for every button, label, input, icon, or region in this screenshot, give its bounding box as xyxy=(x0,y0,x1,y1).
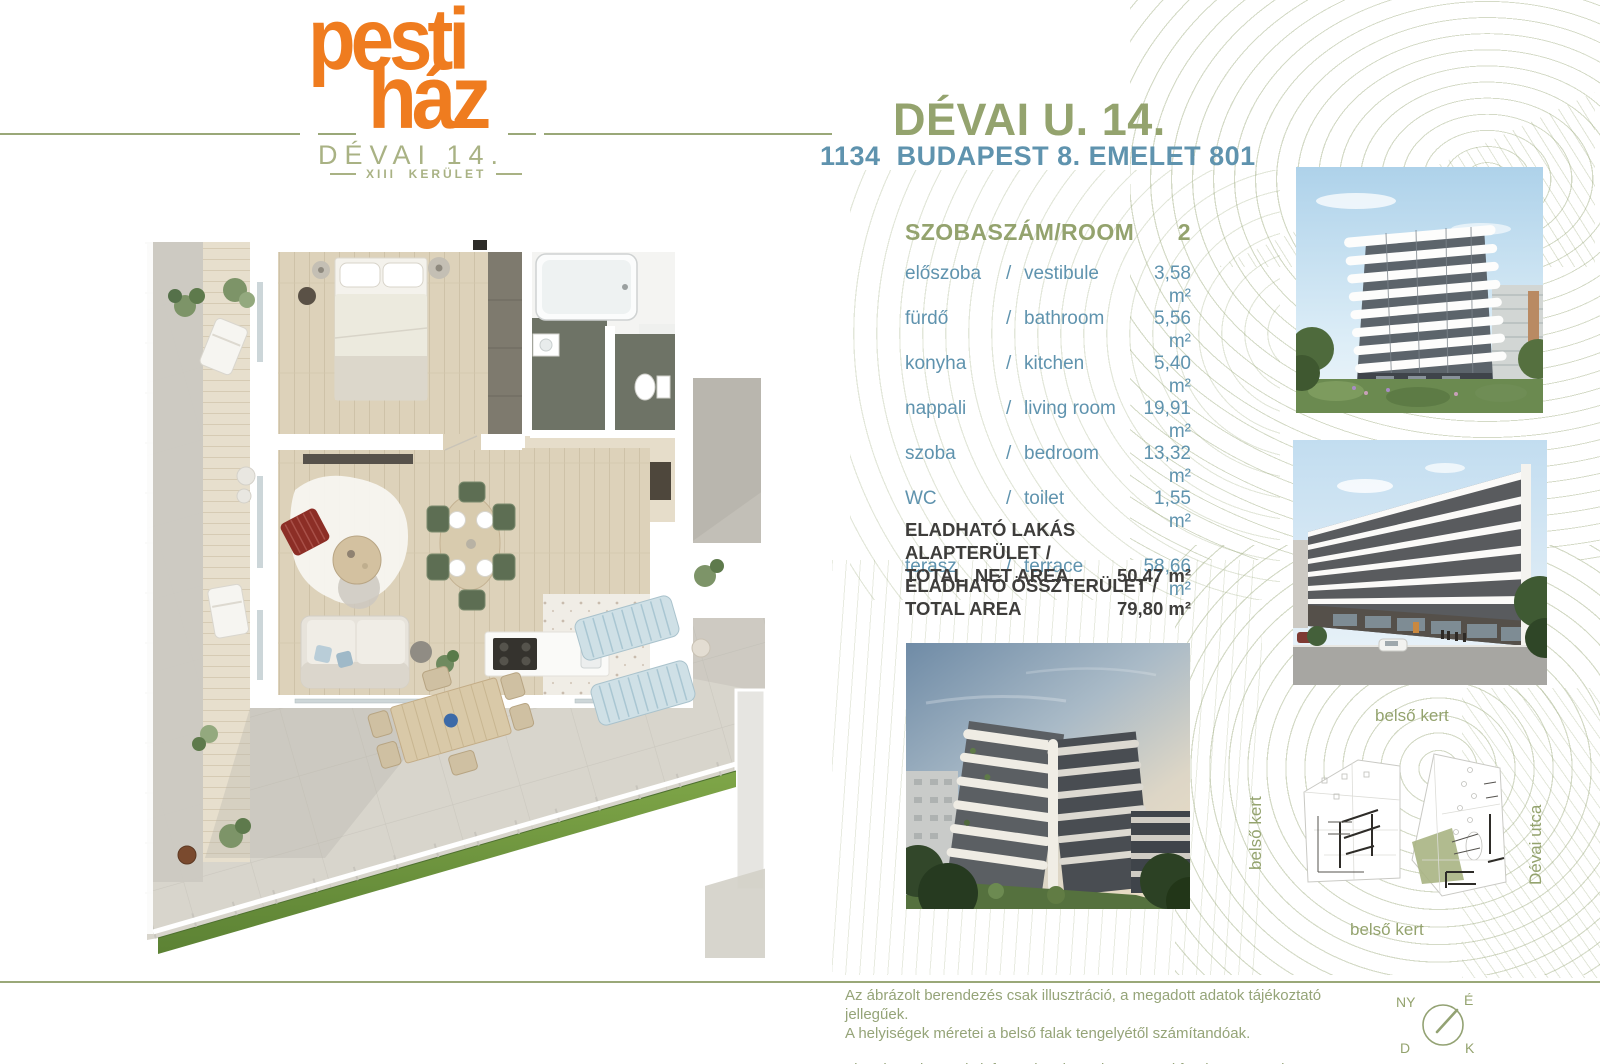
site-label-inner-garden-left: belső kert xyxy=(1246,780,1266,870)
room-name-hu: konyha xyxy=(905,353,1006,398)
header-rule xyxy=(544,133,832,135)
site-label-inner-garden-bottom: belső kert xyxy=(1350,920,1424,940)
room-name-en: kitchen xyxy=(1024,353,1136,398)
site-label-devai-street: Dévai utca xyxy=(1526,775,1546,885)
district-dash-right xyxy=(496,173,522,175)
compass-label-west: NY xyxy=(1396,994,1415,1010)
header-rule-dash xyxy=(508,133,536,135)
table-row: konyha/kitchen5,40 m² xyxy=(905,353,1191,398)
room-name-hu: szoba xyxy=(905,443,1006,488)
page-subtitle: 1134 BUDAPEST 8. EMELET 801 xyxy=(820,141,1256,172)
separator: / xyxy=(1006,353,1024,398)
building-render-photo-2 xyxy=(1293,440,1547,685)
total-net-line1: ELADHATÓ LAKÁS ALAPTERÜLET / xyxy=(905,518,1191,564)
table-row: előszoba/vestibule3,58 m² xyxy=(905,263,1191,308)
room-area: 19,91 m² xyxy=(1136,398,1191,443)
total-gross-line2: TOTAL AREA xyxy=(905,597,1021,620)
total-gross-value: 79,80 m² xyxy=(1117,597,1191,620)
header-rule-dash xyxy=(318,133,356,135)
compass-label-east: K xyxy=(1465,1040,1474,1056)
footer-rule xyxy=(0,981,1600,983)
disclaimer-hu-2: A helyiségek méretei a belső falak tenge… xyxy=(845,1024,1365,1043)
separator: / xyxy=(1006,263,1024,308)
rooms-header-label: SZOBASZÁM/ROOM xyxy=(905,219,1134,246)
room-area: 5,56 m² xyxy=(1136,308,1191,353)
rooms-table-header: SZOBASZÁM/ROOM 2 xyxy=(905,219,1191,246)
total-gross-area: ELADHATÓ ÖSSZTERÜLET / TOTAL AREA 79,80 … xyxy=(905,574,1191,620)
room-name-hu: fürdő xyxy=(905,308,1006,353)
brand-logo-word-2: ház xyxy=(368,62,486,134)
room-area: 3,58 m² xyxy=(1136,263,1191,308)
disclaimer-text: Az ábrázolt berendezés csak illusztráció… xyxy=(845,986,1365,1064)
separator: / xyxy=(1006,443,1024,488)
brochure-page: pesti ház DÉVAI 14. XIII KERÜLET DÉVAI U… xyxy=(0,0,1600,1064)
table-row: szoba/bedroom13,32 m² xyxy=(905,443,1191,488)
district-dash-left xyxy=(330,173,356,175)
separator: / xyxy=(1006,308,1024,353)
building-render-photo-3 xyxy=(906,643,1190,909)
compass-icon xyxy=(1415,997,1471,1053)
compass-label-north: É xyxy=(1464,992,1473,1008)
disclaimer-hu-1: Az ábrázolt berendezés csak illusztráció… xyxy=(845,986,1365,1024)
room-name-en: bathroom xyxy=(1024,308,1136,353)
building-render-photo-1 xyxy=(1296,167,1543,413)
total-gross-line1: ELADHATÓ ÖSSZTERÜLET / xyxy=(905,574,1191,597)
room-name-en: bedroom xyxy=(1024,443,1136,488)
site-label-inner-garden-top: belső kert xyxy=(1375,706,1449,726)
room-name-en: living room xyxy=(1024,398,1136,443)
district-label: XIII KERÜLET xyxy=(366,167,486,181)
room-area: 13,32 m² xyxy=(1136,443,1191,488)
room-name-hu: előszoba xyxy=(905,263,1006,308)
room-name-hu: nappali xyxy=(905,398,1006,443)
site-plan-diagrams xyxy=(1262,738,1522,923)
separator: / xyxy=(1006,398,1024,443)
page-title: DÉVAI U. 14. xyxy=(893,94,1166,146)
brand-logo-district: XIII KERÜLET xyxy=(330,167,522,181)
compass-label-south: D xyxy=(1400,1040,1410,1056)
floor-plan-illustration xyxy=(145,238,765,958)
table-row: nappali/living room19,91 m² xyxy=(905,398,1191,443)
header-rule xyxy=(0,133,300,135)
table-row: fürdő/bathroom5,56 m² xyxy=(905,308,1191,353)
rooms-header-value: 2 xyxy=(1178,219,1191,246)
room-name-en: vestibule xyxy=(1024,263,1136,308)
room-area: 5,40 m² xyxy=(1136,353,1191,398)
disclaimer-en-1: The given data only informational. Equip… xyxy=(845,1060,1365,1064)
